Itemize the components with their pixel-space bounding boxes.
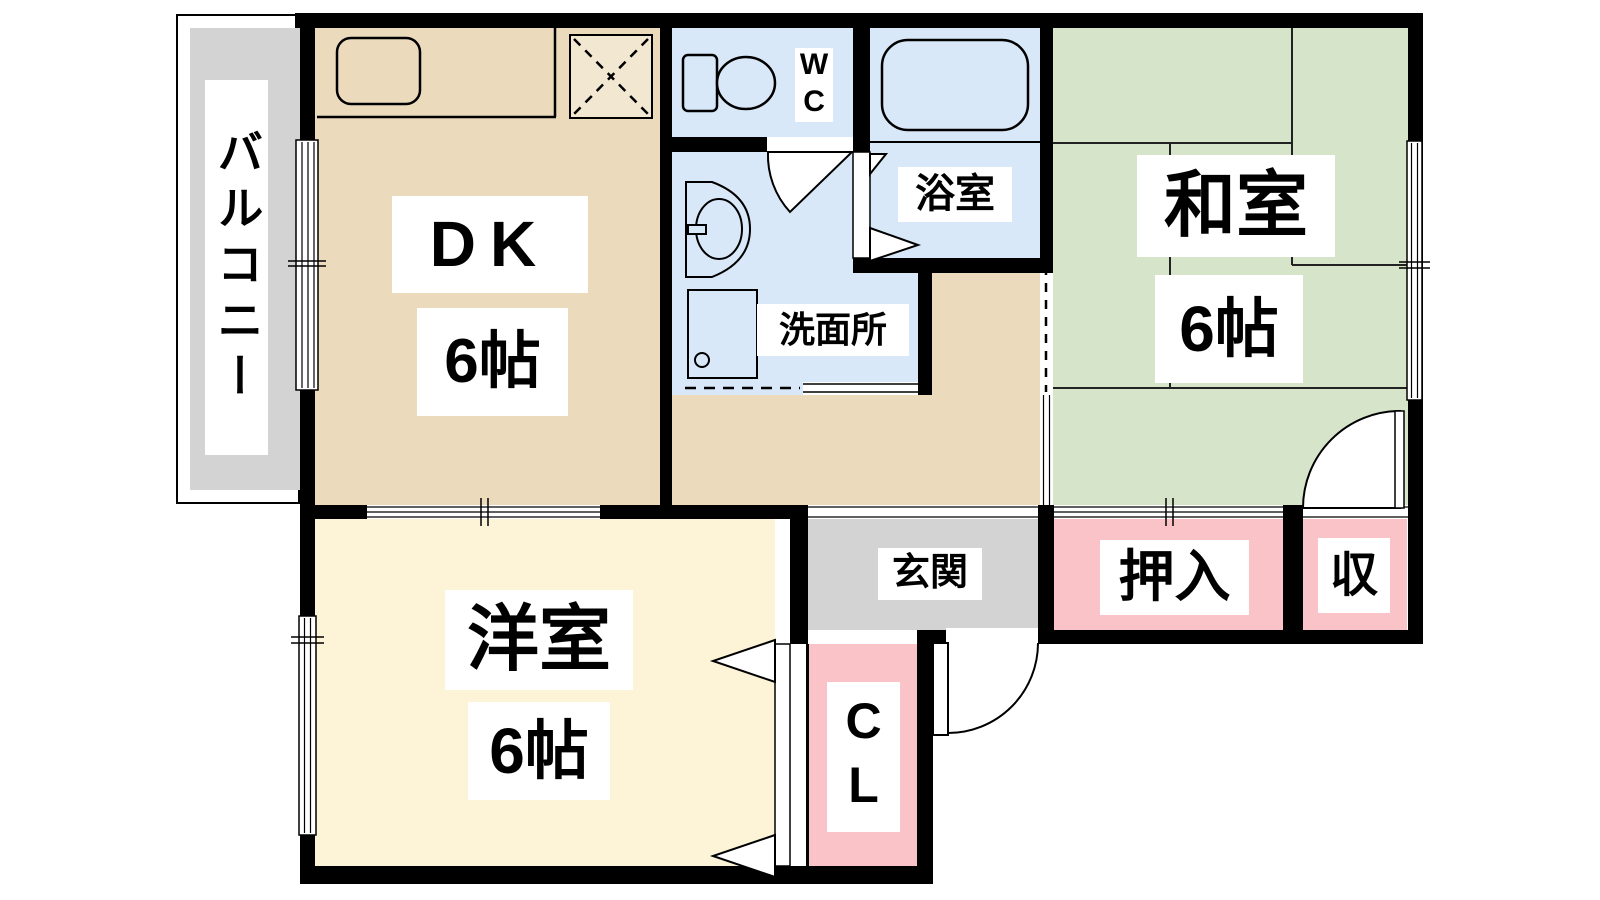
dk-western-sliding-door	[367, 498, 600, 526]
cl-closet-doors	[713, 640, 790, 877]
dk-label: DK	[392, 196, 588, 293]
floor-plan: バルコニー DK 6帖 WC 浴室 洗面所 和室 6帖 玄関 押入 収 CL 洋…	[0, 0, 1600, 900]
kitchen-sink-icon	[337, 38, 420, 104]
wc-label: WC	[795, 48, 833, 122]
balcony-label: バルコニー	[205, 80, 268, 455]
washroom-sliding-door	[685, 382, 918, 395]
japanese-room-door	[1303, 411, 1404, 508]
japanese-room-sliding-door	[1040, 266, 1053, 505]
japanese-room-size-label: 6帖	[1155, 275, 1303, 383]
western-room-label: 洋室	[445, 590, 633, 690]
storage-label: 収	[1318, 538, 1390, 613]
oshiire-label: 押入	[1100, 540, 1249, 615]
refrigerator-space-icon	[570, 35, 652, 118]
western-room-window	[291, 616, 324, 835]
japanese-room-window	[1399, 141, 1430, 400]
balcony-sliding-door	[288, 140, 326, 390]
dk-size-label: 6帖	[417, 308, 568, 416]
bath-label: 浴室	[898, 167, 1012, 222]
kitchen-counter	[317, 28, 556, 117]
japanese-room-label: 和室	[1137, 155, 1335, 257]
entrance-hall-sliding-door	[808, 505, 1038, 519]
entrance-door	[933, 628, 1038, 735]
washing-machine-icon	[688, 290, 757, 378]
toilet-icon	[683, 55, 775, 111]
entrance-label: 玄関	[878, 548, 982, 600]
bathtub-icon	[870, 40, 1040, 142]
vanity-sink-icon	[686, 182, 750, 277]
cl-label: CL	[827, 682, 900, 832]
washroom-label: 洗面所	[757, 304, 909, 356]
western-room-size-label: 6帖	[468, 702, 610, 800]
wc-door	[768, 152, 852, 212]
oshiire-sliding-door	[1054, 498, 1283, 526]
